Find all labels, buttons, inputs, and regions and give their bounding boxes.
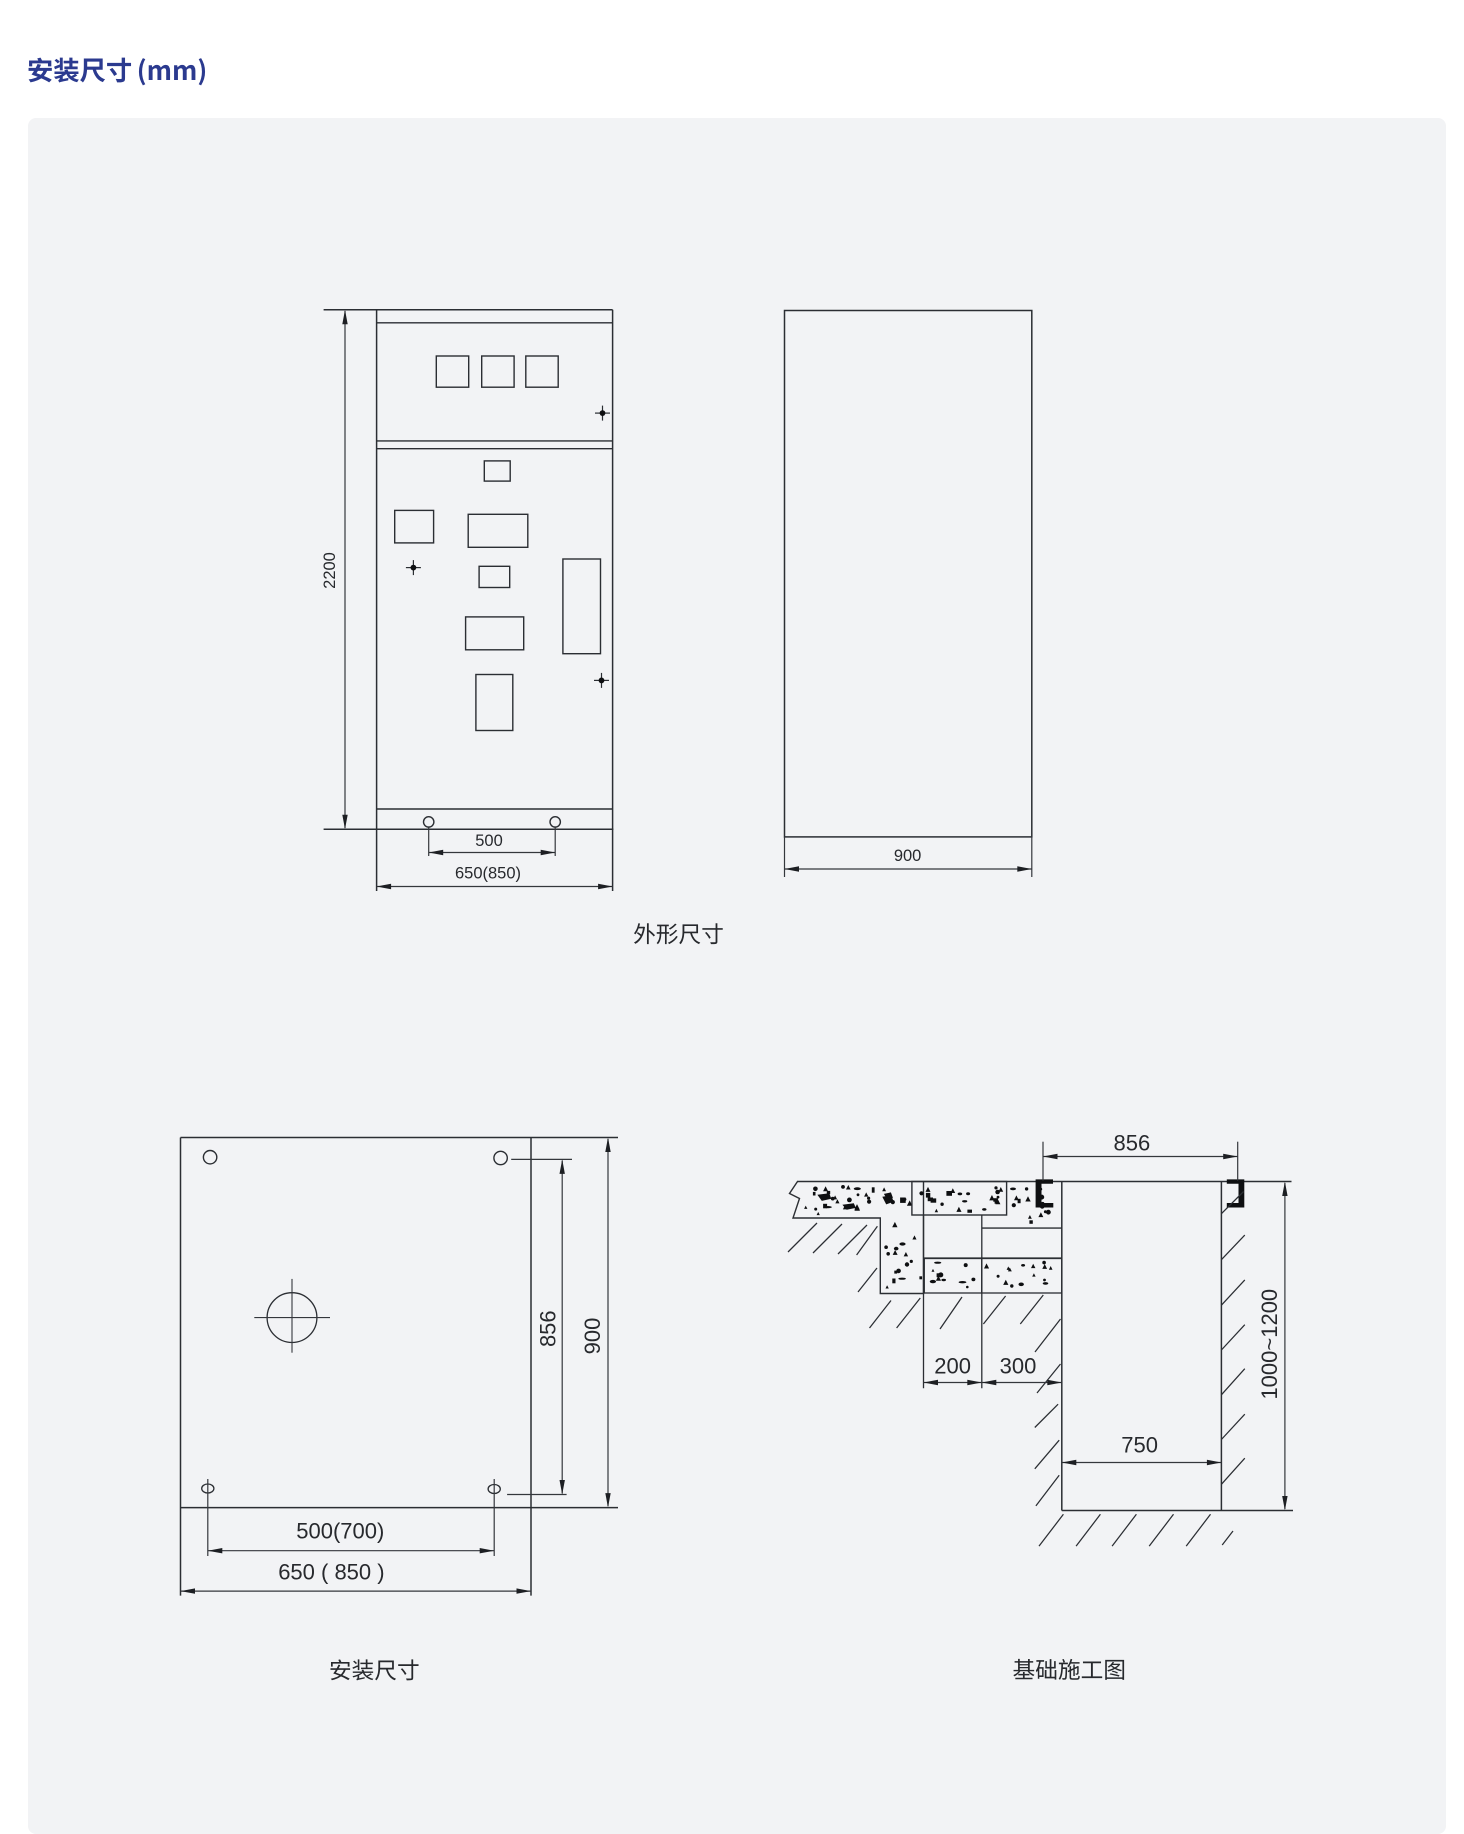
- svg-text:650(850): 650(850): [455, 865, 521, 883]
- svg-text:200: 200: [934, 1354, 971, 1379]
- svg-text:900: 900: [894, 847, 922, 865]
- svg-text:750: 750: [1121, 1433, 1158, 1458]
- svg-text:856: 856: [1114, 1131, 1151, 1156]
- svg-text:500: 500: [475, 832, 503, 850]
- svg-text:500(700): 500(700): [296, 1519, 384, 1544]
- svg-text:900: 900: [580, 1318, 605, 1355]
- svg-text:856: 856: [535, 1310, 560, 1347]
- svg-text:300: 300: [1000, 1354, 1037, 1379]
- svg-text:2200: 2200: [321, 552, 339, 589]
- svg-text:650 ( 850 ): 650 ( 850 ): [278, 1560, 384, 1585]
- svg-text:1000~1200: 1000~1200: [1257, 1289, 1282, 1400]
